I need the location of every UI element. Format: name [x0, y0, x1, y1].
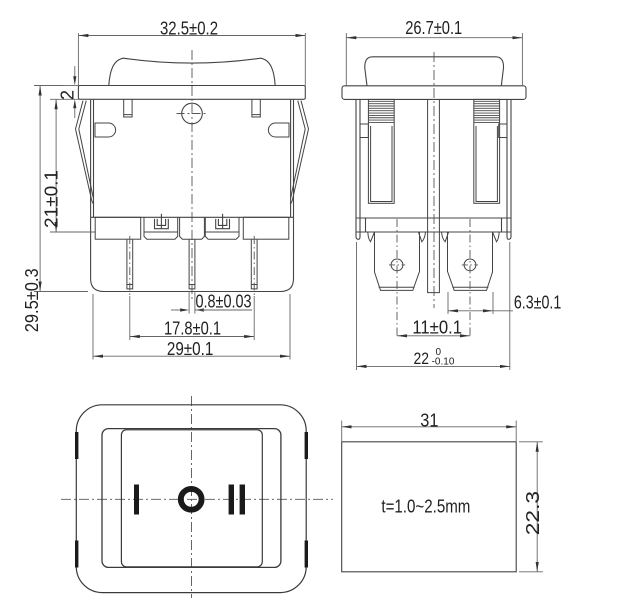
- svg-text:32.5±0.2: 32.5±0.2: [160, 19, 218, 39]
- svg-text:t=1.0~2.5mm: t=1.0~2.5mm: [381, 497, 470, 517]
- svg-text:22: 22: [414, 349, 430, 368]
- svg-text:31: 31: [420, 410, 438, 430]
- svg-text:11±0.1: 11±0.1: [412, 317, 462, 337]
- svg-text:21±0.1: 21±0.1: [41, 170, 61, 228]
- svg-text:0.8±0.03: 0.8±0.03: [196, 292, 252, 312]
- svg-text:-0.10: -0.10: [432, 357, 455, 368]
- svg-text:29±0.1: 29±0.1: [167, 339, 213, 359]
- svg-text:22.3: 22.3: [523, 491, 543, 535]
- svg-text:6.3±0.1: 6.3±0.1: [514, 293, 561, 313]
- svg-text:26.7±0.1: 26.7±0.1: [405, 18, 462, 38]
- svg-text:29.5±0.3: 29.5±0.3: [22, 268, 42, 332]
- svg-text:2: 2: [58, 90, 78, 100]
- svg-text:17.8±0.1: 17.8±0.1: [164, 319, 221, 339]
